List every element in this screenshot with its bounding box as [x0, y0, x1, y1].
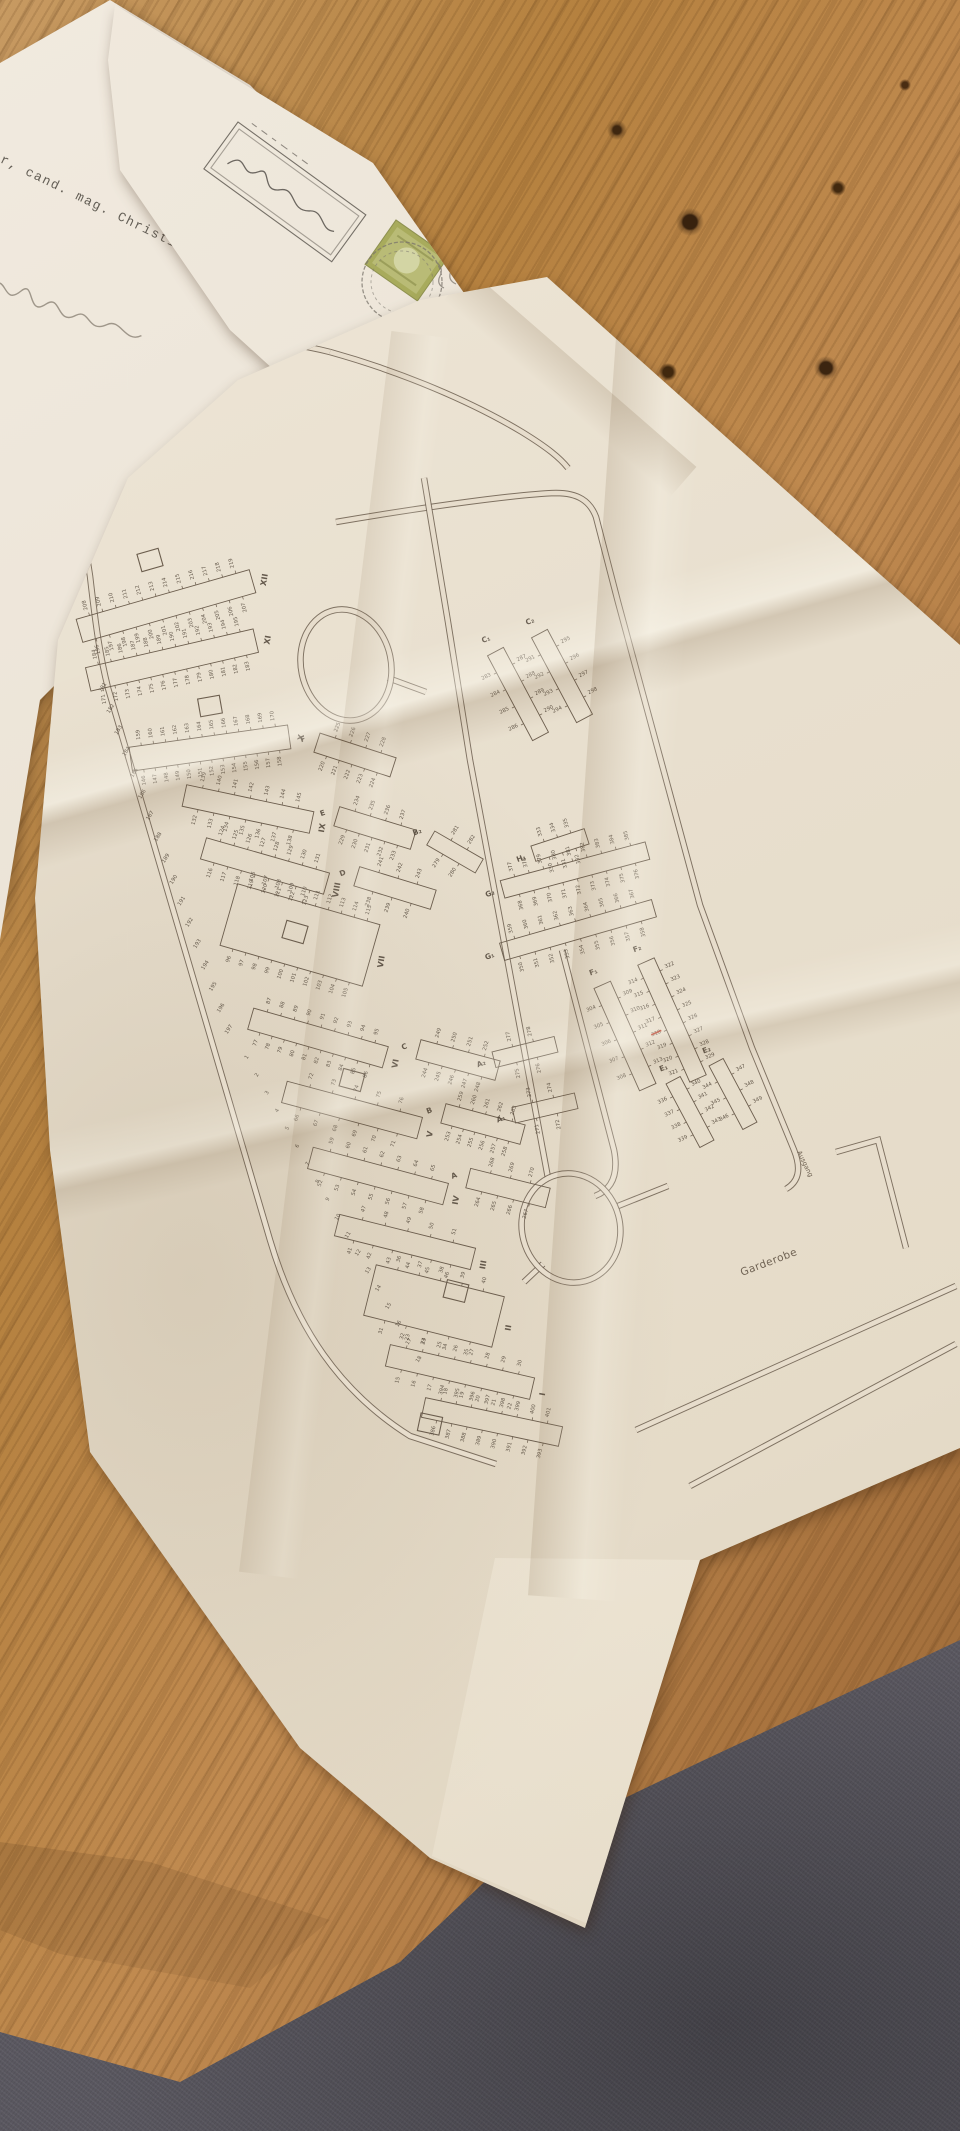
- map-sheet: [0, 0, 960, 2131]
- map-sheet-wrap: [0, 0, 960, 2131]
- map-sheet-flap: [0, 0, 960, 2131]
- photo-scene: er, cand. mag. Christian: [0, 0, 960, 2131]
